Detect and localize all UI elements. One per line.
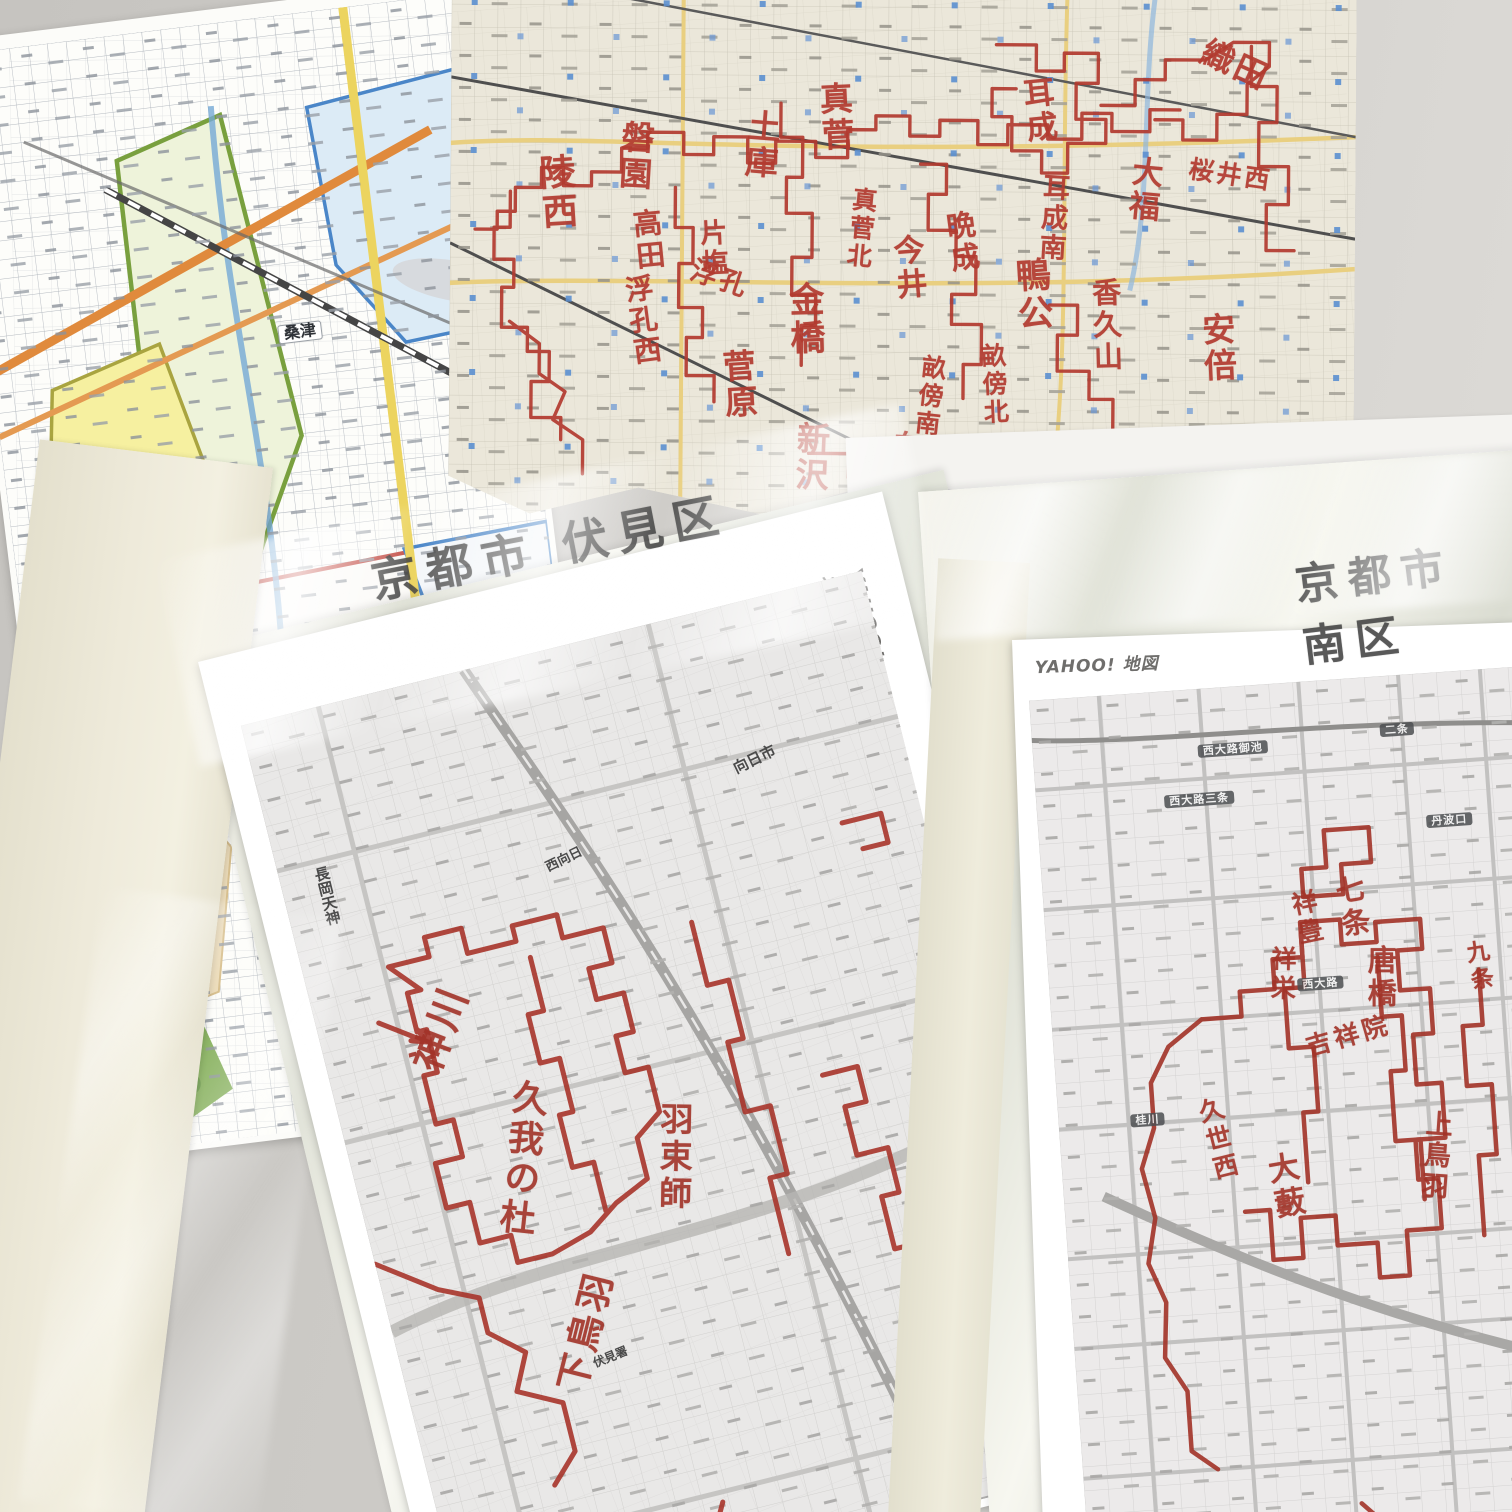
yahoo-map-logo: YAHOO! 地図 xyxy=(1034,649,1158,678)
minami-map-graphic xyxy=(1029,665,1512,1512)
page-minami-map: YAHOO! 地図 xyxy=(1012,620,1512,1512)
handwritten-title-minami: 京都市 南区 xyxy=(1291,525,1512,674)
photo-of-maps-on-desk: 桑津北田辺今川田辺 xyxy=(0,0,1512,1512)
